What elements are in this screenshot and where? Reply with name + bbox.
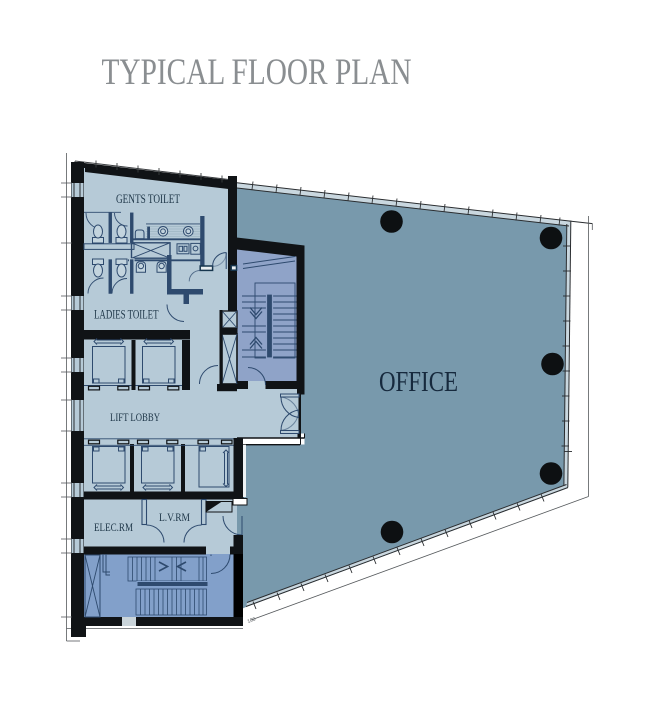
svg-text:ELEC.RM: ELEC.RM — [94, 522, 133, 534]
svg-text:L.V.RM: L.V.RM — [159, 512, 190, 524]
svg-text:TYPICAL FLOOR PLAN: TYPICAL FLOOR PLAN — [102, 52, 412, 93]
svg-text:LADIES TOILET: LADIES TOILET — [94, 308, 159, 322]
svg-text:OFFICE: OFFICE — [379, 366, 458, 398]
svg-text:GENTS TOILET: GENTS TOILET — [116, 192, 180, 206]
svg-text:LIFT LOBBY: LIFT LOBBY — [110, 412, 161, 424]
